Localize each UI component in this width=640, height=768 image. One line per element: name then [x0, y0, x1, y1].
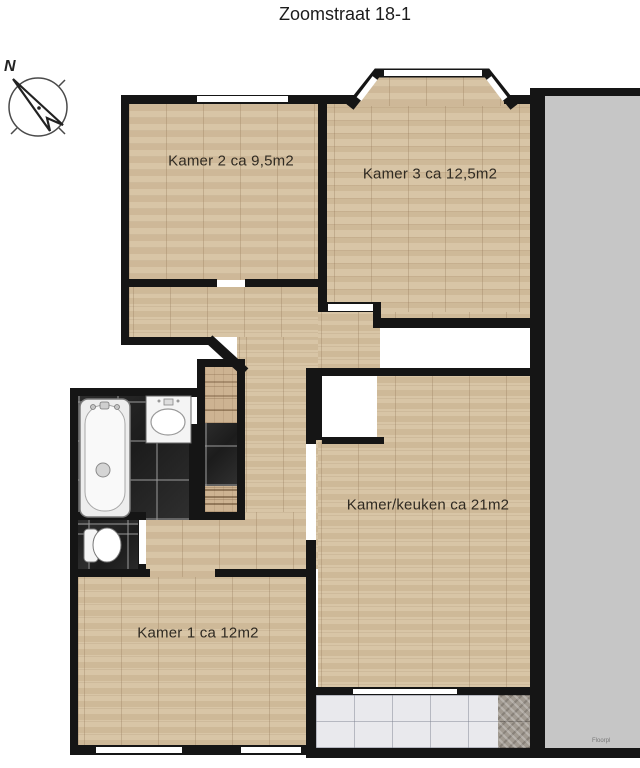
- compass-tick: [59, 80, 65, 86]
- closet-icon: [205, 382, 237, 410]
- sink-knob: [177, 400, 180, 403]
- bathtub-icon: [80, 399, 130, 517]
- staircase-icon: [205, 490, 237, 504]
- bathtub-tap: [115, 405, 120, 410]
- bathtub-spout: [100, 402, 109, 409]
- compass-north-label: N: [4, 58, 16, 76]
- sink-basin: [151, 409, 185, 435]
- sink-icon: [146, 396, 191, 443]
- sink-knob: [158, 400, 161, 403]
- bay-window: [350, 73, 514, 107]
- bathtub-inner: [85, 405, 125, 511]
- room-label-kamer3: Kamer 3 ca 12,5m2: [363, 166, 497, 183]
- compass-center-dot: [37, 106, 41, 110]
- floorplan-canvas: Zoomstraat 18-1: [0, 0, 640, 768]
- fixtures-overlay: [0, 0, 640, 768]
- room-label-kamer-keuken: Kamer/keuken ca 21m2: [347, 497, 509, 514]
- room-label-kamer1: Kamer 1 ca 12m2: [137, 625, 258, 642]
- toilet-bowl: [93, 528, 121, 562]
- bathtub-drain: [96, 463, 110, 477]
- compass-tick: [59, 128, 65, 134]
- diagonal-wall: [209, 339, 245, 372]
- compass-tick: [11, 128, 17, 134]
- watermark: Floorpl: [592, 738, 610, 744]
- room-label-kamer2: Kamer 2 ca 9,5m2: [168, 153, 294, 170]
- compass-needle: [13, 79, 63, 131]
- toilet-icon: [84, 528, 121, 562]
- compass-north-icon: [9, 78, 67, 136]
- sink-tap: [164, 399, 173, 405]
- bathtub-tap: [91, 405, 96, 410]
